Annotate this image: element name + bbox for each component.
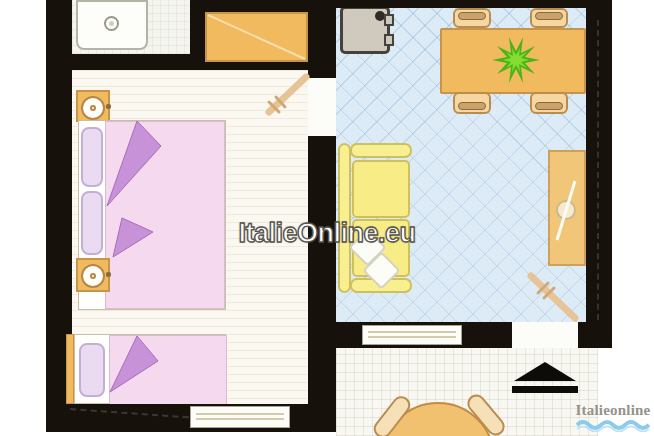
lamp-icon [81,264,105,288]
dining-chair [453,8,491,28]
single-bed [74,334,226,404]
shower-tray [76,0,148,50]
chair-backrest [535,12,563,20]
living-top-wall [336,0,612,8]
single-bed-blanket [109,335,227,405]
chair-backrest [458,102,486,110]
wardrobe [205,12,308,62]
dining-chair [530,92,568,114]
logo-wave-icon [576,420,650,432]
single-bed-headboard [66,334,74,404]
dining-chair [530,8,568,28]
stove-appliance [340,6,390,54]
watermark: ItalieOnline.eu [0,218,654,249]
nightstand-top [76,90,110,122]
nightstand-knob [106,272,111,277]
dining-table [440,28,586,94]
dining-chair [453,92,491,114]
nightstand-knob [106,104,111,109]
double-bed-blanket [105,121,225,309]
nightstand-bottom [76,258,110,292]
sofa-armrest [350,143,412,158]
appliance-tab [384,14,394,26]
sofa-cushion [352,160,410,218]
floor-plan: ItalieOnline.eu Italieonline [0,0,654,436]
chair-backrest [458,12,486,20]
chair-backrest [535,102,563,110]
lamp-icon [81,96,105,120]
terrace-door-opening [512,322,578,348]
wall-texture-dash [597,20,599,320]
double-bed-pillow [81,127,103,187]
bathroom-wardrobe-wall [190,0,205,62]
site-logo: Italieonline [574,402,652,436]
living-room-window [362,325,462,345]
site-logo-text: Italieonline [574,402,652,418]
single-bed-pillow [79,343,105,397]
bedroom-living-divider-wall [308,0,336,432]
bathroom-bedroom-wall [72,54,205,70]
living-right-wall [586,0,612,348]
under-wardrobe-wall [205,62,308,70]
bedroom-window [190,406,290,428]
bedroom-door-opening [308,78,336,136]
appliance-tab [384,34,394,46]
bedroom-top-wall [205,0,308,12]
shower-drain-icon [104,16,119,31]
